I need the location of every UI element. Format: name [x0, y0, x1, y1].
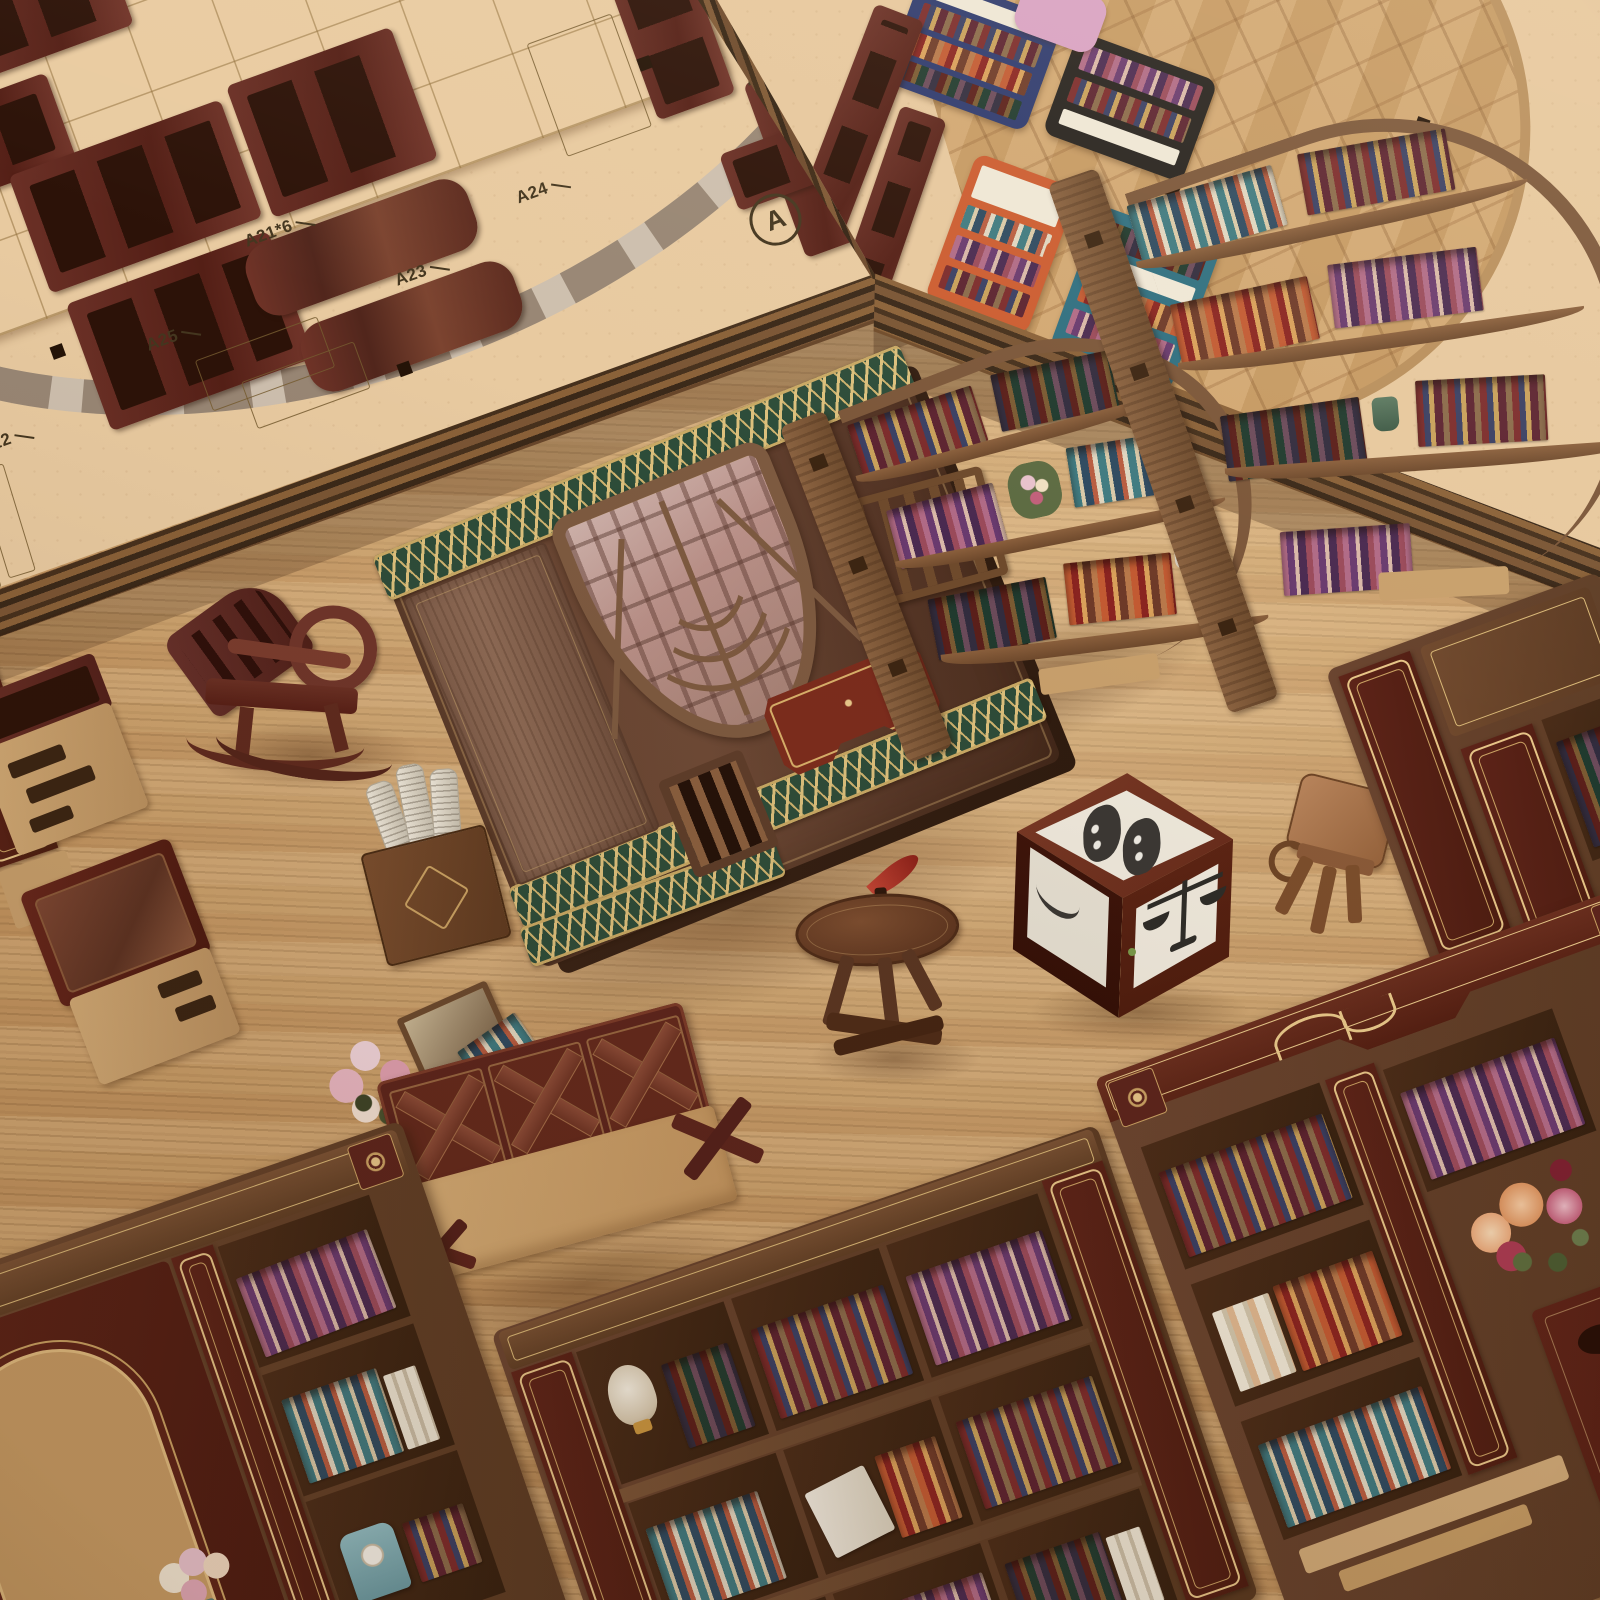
scene-miniature-book-nook-kit: A10 A21*6 A22 A23 A24 A25 A	[0, 0, 1600, 1600]
rail-notch	[1175, 495, 1195, 513]
mini-books	[1415, 374, 1548, 447]
chair-rocker	[212, 707, 397, 791]
clock-face	[355, 1537, 391, 1573]
x-bar	[412, 1074, 485, 1181]
x-bar	[511, 1047, 584, 1154]
green-scrap	[1128, 948, 1136, 956]
cabinet-slot	[28, 805, 74, 834]
mini-vase	[1371, 396, 1400, 432]
bin-diamond-inlay	[404, 865, 470, 931]
rail-notch	[809, 453, 829, 472]
rail-notch	[848, 556, 868, 575]
stool-leg	[1310, 865, 1338, 934]
x-bar	[609, 1021, 682, 1128]
bin-body	[360, 824, 512, 968]
dresser-drawer-slot	[174, 994, 217, 1022]
stool-leg	[1345, 865, 1362, 924]
rack-base-foot	[1378, 566, 1509, 601]
mini-books	[645, 1491, 787, 1600]
rail-notch	[888, 658, 908, 677]
dresser-drawer-slot	[157, 969, 203, 999]
slotted-cabinet	[0, 651, 158, 865]
sticker-cube	[1004, 764, 1243, 1022]
rail-notch	[1084, 230, 1104, 248]
outline-part-a22	[0, 463, 36, 578]
pedestal-table	[781, 858, 975, 1080]
part-label-a22: A22	[0, 429, 14, 459]
rail-notch	[1130, 363, 1150, 381]
shell-lamp	[600, 1358, 663, 1430]
scales-pan	[1199, 886, 1226, 910]
mini-books	[1063, 552, 1177, 625]
mini-books	[402, 1503, 483, 1582]
window-piece-slots	[246, 47, 417, 197]
rail-notch	[1217, 618, 1237, 636]
mini-books	[661, 1342, 756, 1448]
blue-mantel-clock	[337, 1520, 413, 1600]
table-top-ring	[805, 900, 950, 960]
scales-pan	[1143, 911, 1170, 935]
cabinet-slot	[7, 744, 67, 780]
rocking-chair	[165, 574, 401, 805]
